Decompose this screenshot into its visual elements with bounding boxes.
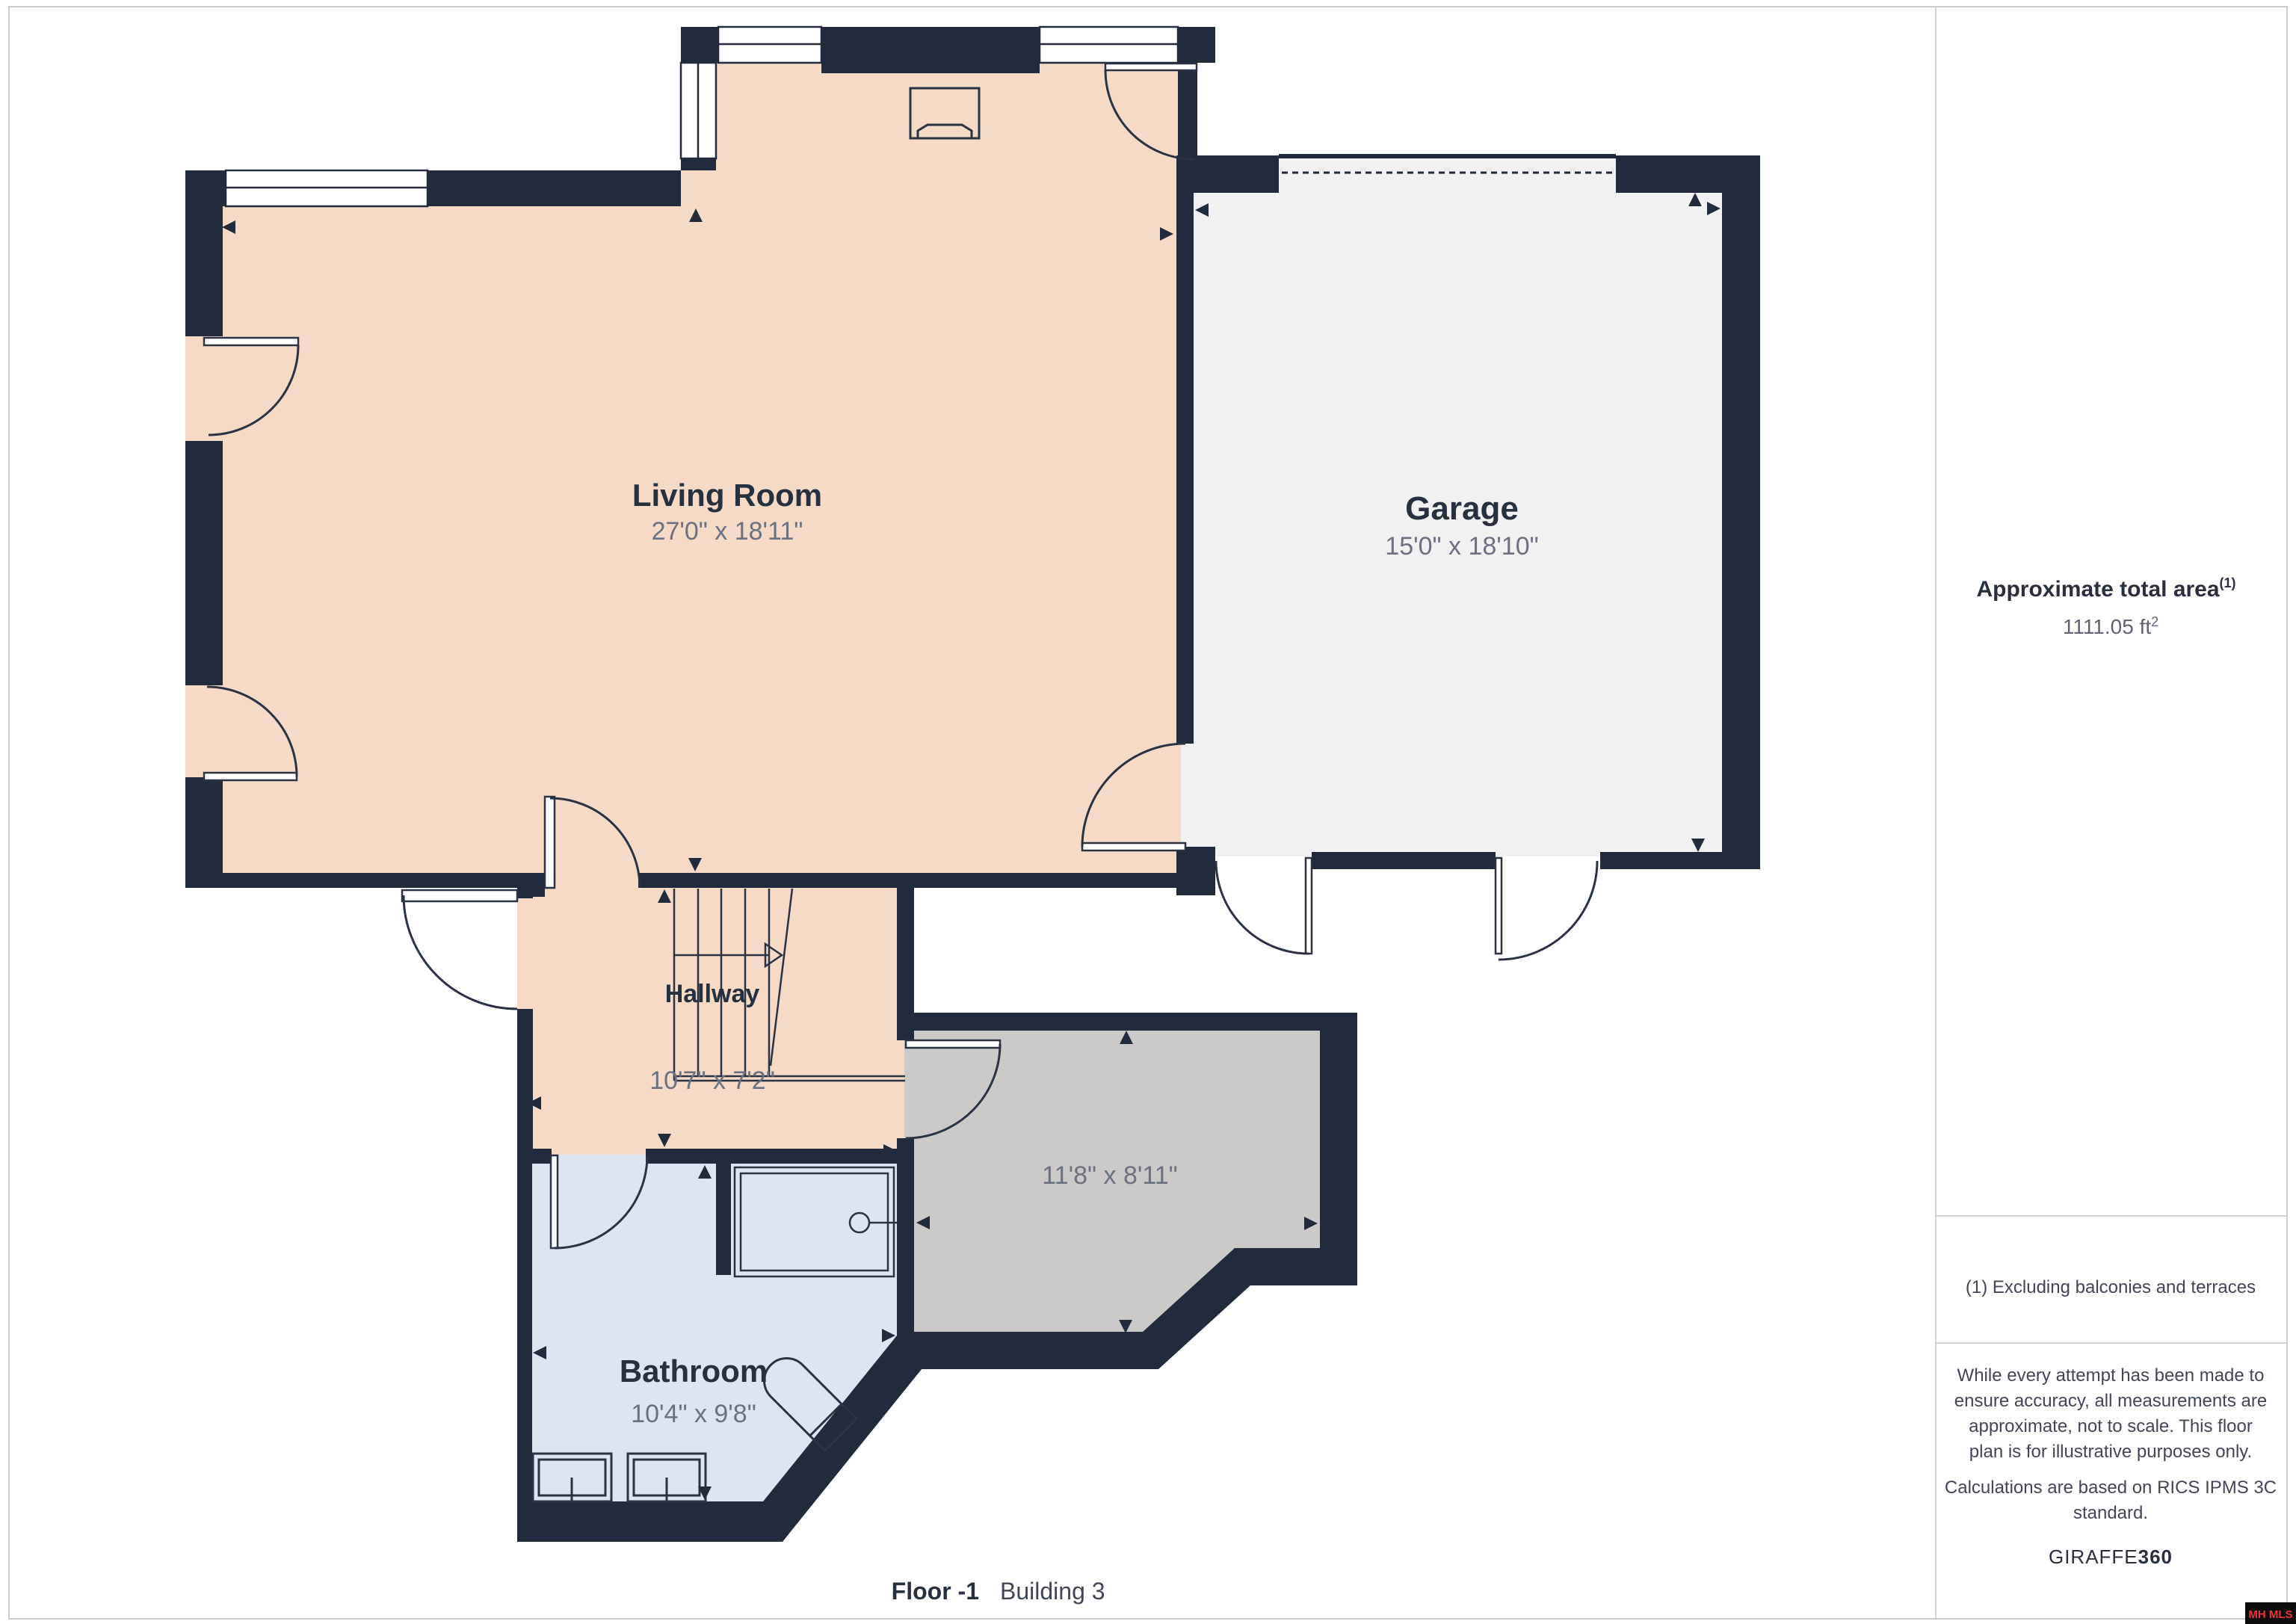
svg-text:Building 3: Building 3	[1000, 1578, 1105, 1605]
svg-text:Floor -1: Floor -1	[892, 1578, 979, 1605]
svg-text:Approximate total area(1): Approximate total area(1)	[1976, 575, 2235, 602]
svg-text:Bathroom: Bathroom	[620, 1353, 768, 1389]
svg-text:approximate, not to scale. Thi: approximate, not to scale. This floor	[1969, 1416, 2253, 1436]
svg-text:MH MLS: MH MLS	[2248, 1608, 2292, 1621]
svg-text:Garage: Garage	[1405, 490, 1519, 527]
svg-text:Calculations are based on RICS: Calculations are based on RICS IPMS 3C	[1945, 1478, 2277, 1498]
svg-text:27'0" x 18'11": 27'0" x 18'11"	[652, 517, 803, 546]
svg-text:plan is for illustrative purpo: plan is for illustrative purposes only.	[1969, 1442, 2252, 1462]
svg-text:ensure accuracy, all measureme: ensure accuracy, all measurements are	[1954, 1391, 2267, 1411]
svg-text:15'0" x 18'10": 15'0" x 18'10"	[1385, 532, 1538, 561]
svg-text:Living Room: Living Room	[632, 478, 822, 513]
svg-text:10'4" x 9'8": 10'4" x 9'8"	[631, 1400, 756, 1428]
svg-text:While every attempt has been m: While every attempt has been made to	[1957, 1365, 2265, 1386]
svg-text:10'7" x 7'2": 10'7" x 7'2"	[649, 1066, 775, 1095]
svg-text:GIRAFFE360: GIRAFFE360	[2049, 1546, 2173, 1568]
svg-text:standard.: standard.	[2073, 1503, 2148, 1523]
svg-text:1111.05 ft2: 1111.05 ft2	[2063, 614, 2158, 638]
svg-text:11'8" x 8'11": 11'8" x 8'11"	[1042, 1161, 1177, 1190]
svg-text:(1) Excluding balconies and te: (1) Excluding balconies and terraces	[1966, 1277, 2256, 1297]
svg-text:Hallway: Hallway	[665, 980, 760, 1008]
